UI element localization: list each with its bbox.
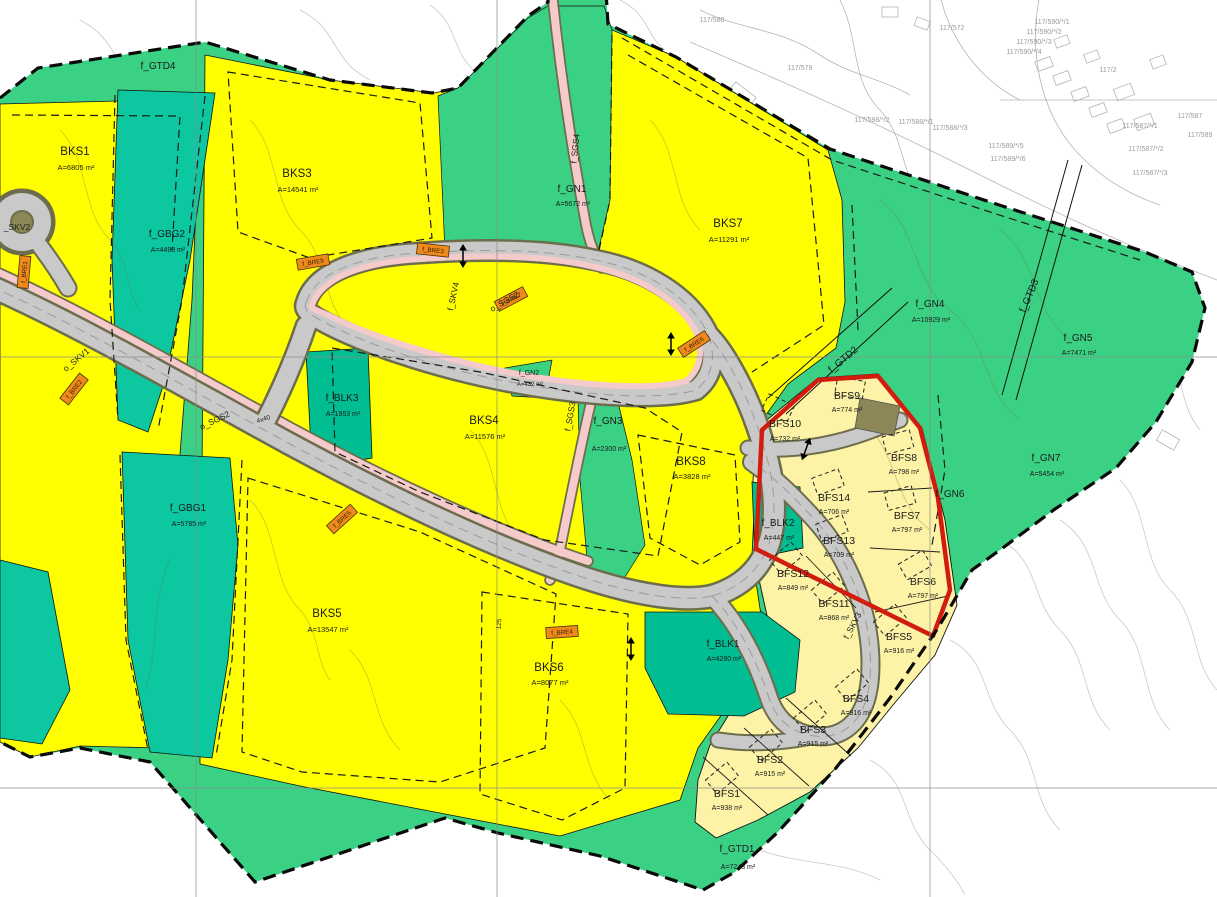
road-label-skv2: _SKV2 [3,222,31,232]
cadastral-label: 117/580 [700,17,725,24]
parcel-label-bfs12: BFS12 [777,568,809,580]
parcel-area-bks4: A=11576 m² [465,432,506,441]
parcel-label-bfs7: BFS7 [894,510,920,522]
parcel-area-gn5: A=7471 m² [1062,350,1097,357]
cadastral-label: 117/590/*/1 [1034,19,1069,26]
parcel-label-bfs5: BFS5 [886,631,912,643]
parcel-label-blk3: f_BLK3 [326,393,359,404]
parcel-area-gbg2: A=4498 m² [151,247,186,254]
cadastral-label: 117/587/*/1 [1122,123,1157,130]
parcel-label-bfs13: BFS13 [823,535,855,547]
parcel-area-gbg1: A=5785 m² [172,521,207,528]
parcel-label-bks1: BKS1 [60,146,89,158]
parcel-area-bfs9: A=774 m² [832,407,863,414]
parcel-label-bks4: BKS4 [469,415,499,427]
parcel-label-gtd4: f_GTD4 [140,61,175,72]
cadastral-label: 117/590/*/4 [1006,49,1041,56]
parcel-label-bks8: BKS8 [676,456,705,468]
parcel-label-bks6: BKS6 [534,662,563,674]
parcel-area-bfs14: A=706 m² [819,509,850,516]
parcel-area-bks8: A=3828 m² [674,472,711,481]
parcel-area-blk1: A=4280 m² [707,656,742,663]
parcel-area-blk2: A=447 m² [764,535,795,542]
cadastral-label: 117/589 [1188,132,1213,139]
cadastral-label: 117/572 [940,25,965,32]
parcel-area-bfs2: A=915 m² [755,771,786,778]
parcel-label-bfs10: BFS10 [769,418,801,430]
parcel-area-bfs4: A=916 m² [841,710,872,717]
parcel-area-gn2: A=432 m² [517,382,543,388]
parcel-label-bfs8: BFS8 [891,452,917,464]
parcel-label-gbg2: f_GBG2 [149,229,186,240]
parcel-label-bfs6: BFS6 [910,576,936,588]
parcel-label-gn5: f_GN5 [1064,333,1093,344]
parcel-area-bfs11: A=868 m² [819,615,850,622]
parcel-label-bfs1: BFS1 [714,788,740,800]
parcel-label-gn3: f_GN3 [594,416,623,427]
parcel-area-bfs6: A=797 m² [908,593,939,600]
parcel-label-gn7: f_GN7 [1032,453,1061,464]
parcel-label-bks3: BKS3 [282,168,311,180]
parcel-area-bks7: A=11291 m² [709,235,750,244]
parcel-label-bfs9: BFS9 [834,390,860,402]
parcel-area-bks3: A=14541 m² [277,185,319,194]
parcel-label-gn1: f_GN1 [558,184,587,195]
parcel-label-blk2: f_BLK2 [762,518,795,529]
parcel-area-gtd1: A=7243 m² [721,864,756,871]
parcel-label-gtd1: f_GTD1 [719,844,754,855]
parcel-area-gn1: A=5672 m² [556,201,591,208]
parcel-area-bfs10: A=732 m² [770,436,801,443]
parcel-area-bfs13: A=709 m² [824,552,855,559]
parcel-area-blk3: A=1953 m² [326,411,361,418]
parcel-area-bks6: A=8077 m² [532,678,569,687]
parcel-area-bfs1: A=938 m² [712,805,743,812]
parcel-label-gn2: f_GN2 [519,370,539,377]
parcel-area-bfs8: A=798 m² [889,469,920,476]
parcel-area-bfs7: A=797 m² [892,527,923,534]
parcel-area-bks5: A=13547 m² [307,625,349,634]
cadastral-label: 117/587 [1178,113,1203,120]
cadastral-label: 117/588/*/2 [854,117,889,124]
parcel-label-bfs2: BFS2 [757,754,783,766]
parcel-area-gn3: A=2300 m² [592,446,627,453]
parcel-label-bfs14: BFS14 [818,492,850,504]
parcel-area-bks1: A=6805 m² [58,163,95,172]
parcel-label-gn6: f_GN6 [936,489,965,500]
parcel-label-bfs4: BFS4 [843,693,869,705]
parcel-label-bfs11: BFS11 [818,598,849,610]
cadastral-label: 117/589/*/6 [990,156,1025,163]
parcel-label-gbg1: f_GBG1 [170,503,207,514]
zoning-map: f_BRE1 f_BRE2 f_BRE9 f_BRE3 f_BRE7 f_BRE… [0,0,1217,897]
parcel-area-bfs5: A=916 m² [884,648,915,655]
parcel-area-bfs3: A=915 m² [798,741,829,748]
dimension-label: 125 [496,618,504,630]
parcel-area-gn7: A=5454 m² [1030,471,1065,478]
cadastral-label: 117/579 [788,65,813,72]
cadastral-label: 117/588/*/3 [932,125,967,132]
cadastral-label: 117/590/*/3 [1016,39,1051,46]
parcel-label-bks5: BKS5 [312,608,341,620]
cadastral-label: 117/590/*/2 [1026,29,1061,36]
parcel-label-blk1: f_BLK1 [707,639,740,650]
cadastral-label: 117/587/*/3 [1132,170,1167,177]
cadastral-label: 117/589/*/5 [988,143,1023,150]
parcel-label-bks7: BKS7 [713,218,742,230]
parcel-label-bfs3: BFS3 [800,724,826,736]
parcel-area-gn4: A=10929 m² [912,317,951,324]
cadastral-label: 117/587/*/2 [1128,146,1163,153]
cadastral-label: 117/588/*/1 [898,119,933,126]
parcel-label-gn4: f_GN4 [916,299,945,310]
cadastral-label: 117/2 [1100,67,1117,74]
parcel-area-bfs12: A=849 m² [778,585,809,592]
